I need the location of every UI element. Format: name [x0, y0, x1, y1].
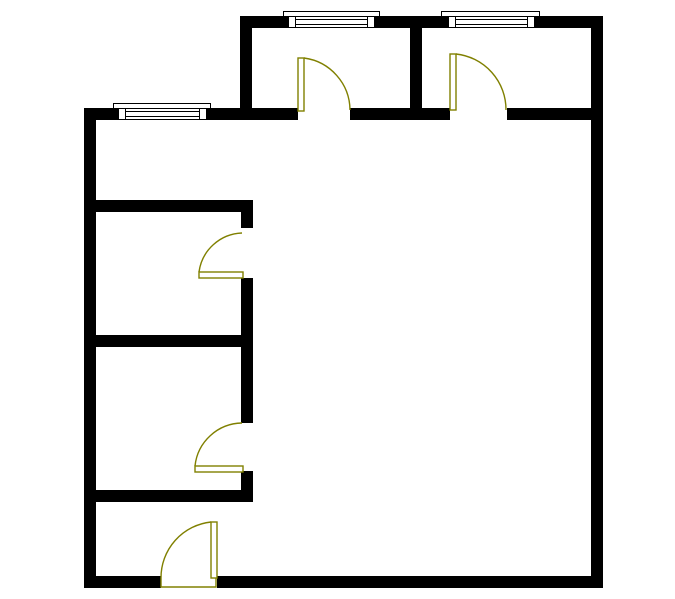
floor-plan-canvas — [0, 0, 675, 599]
door-top-room-1-leaf — [298, 58, 304, 111]
window-north-room2-glass-line-1 — [456, 19, 527, 20]
north-interior-wall-east — [507, 108, 591, 120]
left-rooms-wall-3 — [84, 490, 253, 502]
left-exterior-wall — [84, 108, 96, 588]
door-top-room-2-swing-arc — [456, 54, 506, 110]
window-north-room1-glass-line-1 — [296, 19, 367, 20]
entry-door-swing-arc — [161, 522, 211, 578]
entry-door-leaf — [211, 522, 217, 578]
door-left-room-1-swing-arc — [199, 233, 242, 272]
right-exterior-wall — [591, 16, 603, 588]
door-left-room-2-swing-arc — [195, 423, 242, 466]
window-west-glass-line-2 — [126, 116, 199, 117]
corridor-wall-middle — [241, 278, 253, 423]
extension-divider-wall — [410, 16, 422, 120]
door-symbols-layer — [0, 0, 675, 599]
left-rooms-wall-1 — [84, 200, 253, 212]
north-interior-wall-mid — [350, 108, 450, 120]
extension-west-wall — [240, 16, 252, 120]
door-left-room-1-leaf — [199, 272, 243, 278]
left-rooms-wall-2 — [84, 335, 253, 347]
window-north-room1-glass-line-2 — [296, 24, 367, 25]
window-north-room2-glass-line-2 — [456, 24, 527, 25]
door-left-room-2-leaf — [195, 466, 243, 472]
corridor-wall-lower — [241, 471, 253, 502]
corridor-wall-upper — [241, 200, 253, 228]
window-west-frame — [113, 103, 211, 109]
window-north-room2-frame — [441, 11, 540, 17]
door-top-room-1-swing-arc — [304, 58, 350, 110]
door-top-room-2-leaf — [450, 54, 456, 110]
bottom-exterior-wall-east — [217, 576, 603, 588]
window-west-glass-line-1 — [126, 111, 199, 112]
window-north-room1-frame — [283, 11, 380, 17]
entry-door-threshold — [161, 578, 216, 587]
